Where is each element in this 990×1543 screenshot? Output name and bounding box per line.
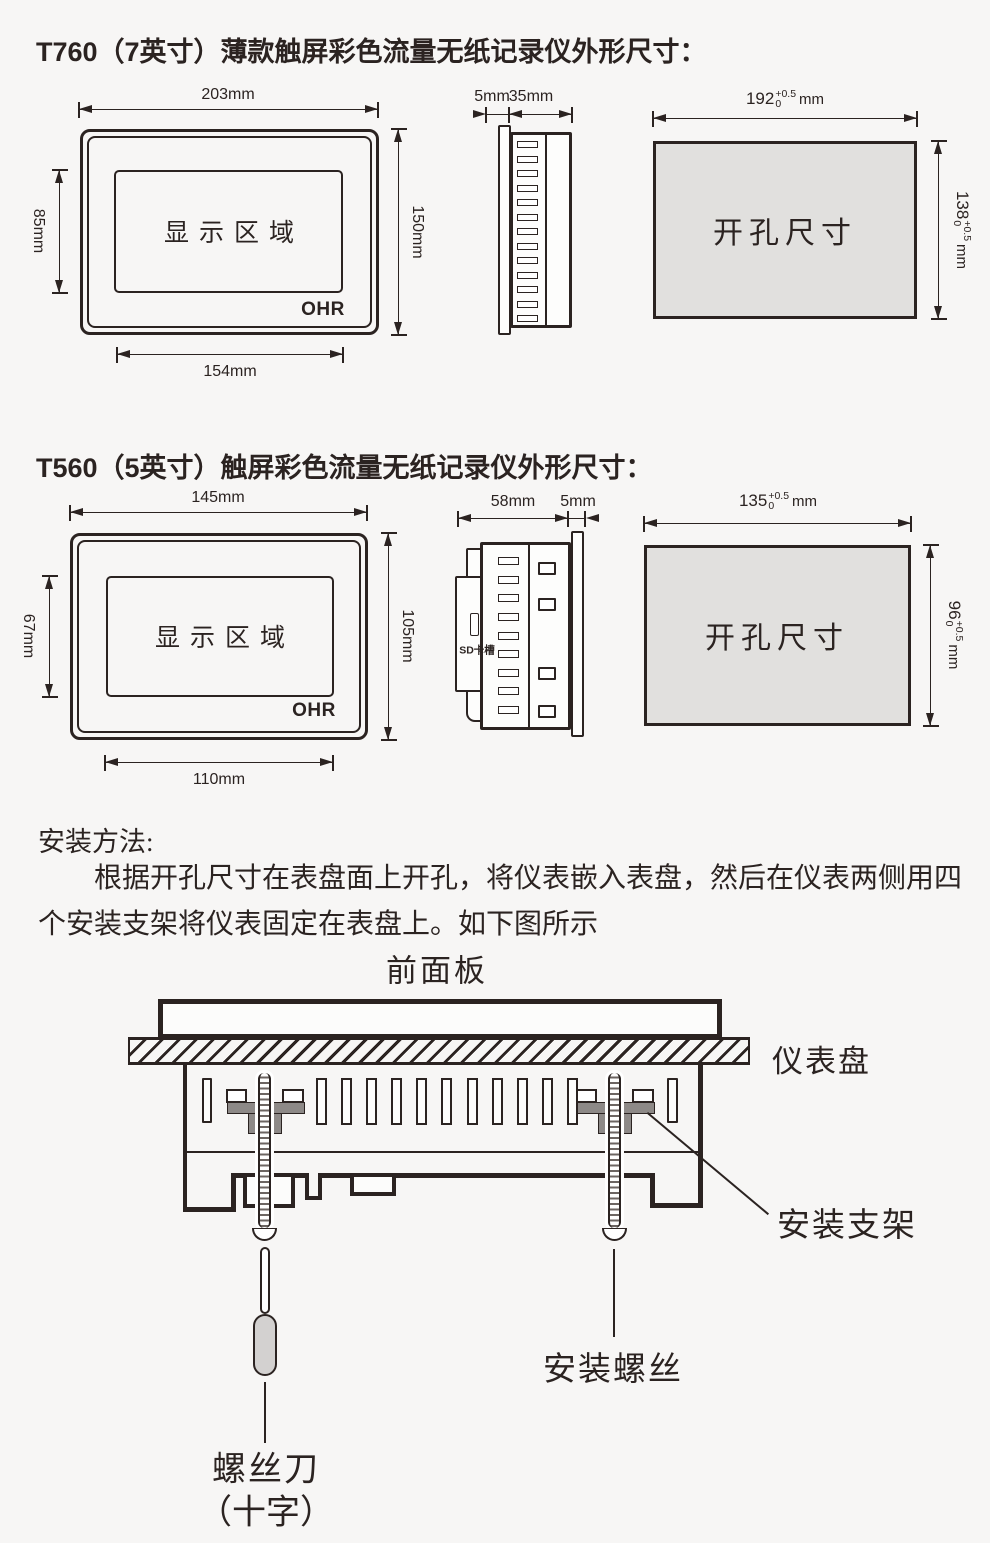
screwdriver-handle xyxy=(253,1314,277,1376)
vent-slot xyxy=(517,185,538,192)
vent-slot xyxy=(517,243,538,250)
bottom-profile-box xyxy=(350,1173,396,1196)
dim-arrow xyxy=(653,114,666,122)
t560-side-divider xyxy=(528,544,530,728)
vent-slot xyxy=(517,199,538,206)
t560-sd-label: SD卡槽 xyxy=(459,643,495,658)
vent-slot xyxy=(498,669,519,677)
vent-slot xyxy=(517,1078,528,1125)
vent-slot xyxy=(542,1078,553,1125)
t760-front-dim-bottom-label: 154mm xyxy=(203,363,256,381)
dim-arrow xyxy=(898,519,911,527)
front-panel-label: 前面板 xyxy=(386,946,488,991)
t560-side-dim-bezel-label: 5mm xyxy=(560,493,596,511)
t760-front-dim-bottom xyxy=(117,354,343,355)
vent-slot xyxy=(517,286,538,293)
dim-arrow xyxy=(555,514,568,522)
bracket-leader-line xyxy=(647,1112,769,1215)
t560-logo: OHR xyxy=(292,700,336,722)
vent-slot xyxy=(517,257,538,264)
t760-side-dim-bezel-label: 5mm xyxy=(474,88,510,106)
t560-front-dim-bottom xyxy=(105,762,333,763)
dim-arrow xyxy=(55,280,63,293)
screw-label: 安装螺丝 xyxy=(543,1342,683,1390)
instrument-panel-hatch xyxy=(128,1037,750,1065)
dim-arrow xyxy=(473,110,486,118)
vent-slot xyxy=(498,594,519,602)
dim-arrow xyxy=(394,129,402,142)
t560-front-dim-left-label: 67mm xyxy=(19,614,37,658)
bracket-notch xyxy=(632,1089,654,1103)
dim-arrow xyxy=(934,141,942,154)
vent-slot xyxy=(498,706,519,714)
t560-side-hole xyxy=(538,705,556,718)
t760-display-label: 显示区域 xyxy=(154,213,304,249)
t760-front-dim-left-label: 85mm xyxy=(29,209,47,253)
t760-side-dim-line xyxy=(486,114,572,115)
vent-slot xyxy=(416,1078,427,1125)
dim-arrow xyxy=(394,322,402,335)
t560-cutout-dim-right xyxy=(930,545,931,726)
install-paragraph-line2: 个安装支架将仪表固定在表盘上。如下图所示 xyxy=(38,902,598,942)
t760-front-dim-left xyxy=(59,170,60,293)
t760-title: T760（7英寸）薄款触屏彩色流量无纸记录仪外形尺寸： xyxy=(36,30,707,69)
install-heading: 安装方法: xyxy=(38,820,154,859)
t760-side-vent-slots xyxy=(517,141,538,322)
dim-arrow xyxy=(904,114,917,122)
t760-front-dim-top-label: 203mm xyxy=(201,86,254,104)
vent-slot xyxy=(202,1078,212,1123)
t560-front-dim-bottom-label: 110mm xyxy=(193,771,245,789)
t560-front-dim-left xyxy=(49,576,50,697)
bottom-profile-edge xyxy=(231,1173,236,1212)
page: T760（7英寸）薄款触屏彩色流量无纸记录仪外形尺寸： 203mm 显示区域 O… xyxy=(0,0,990,1543)
vent-slot xyxy=(498,650,519,658)
body-vent-slots xyxy=(316,1078,578,1125)
screwdriver-type-label: （十字） xyxy=(198,1485,334,1534)
t560-side-hole xyxy=(538,667,556,680)
bracket-label: 安装支架 xyxy=(777,1198,917,1246)
screwdriver-shaft xyxy=(260,1247,270,1314)
vent-slot xyxy=(391,1078,402,1125)
t760-front-dim-right-label: 150mm xyxy=(408,205,426,258)
vent-slot xyxy=(467,1078,478,1125)
vent-slot xyxy=(366,1078,377,1125)
vent-slot xyxy=(517,170,538,177)
dim-arrow xyxy=(559,110,572,118)
t560-front-dim-right xyxy=(388,533,389,740)
t560-cutout-label: 开孔尺寸 xyxy=(705,613,849,657)
t560-side-vent-slots xyxy=(498,557,519,714)
dim-arrow xyxy=(70,508,83,516)
body-left-edge xyxy=(183,1063,187,1212)
vent-slot xyxy=(316,1078,327,1125)
dim-arrow xyxy=(105,758,118,766)
t760-side-dim-depth-label: 35mm xyxy=(509,88,553,106)
dim-arrow xyxy=(320,758,333,766)
vent-slot xyxy=(441,1078,452,1125)
mounting-screw-tip xyxy=(252,1228,277,1241)
t560-cutout-dim-top-label: 135 +0.50 mm xyxy=(739,491,817,511)
dim-arrow xyxy=(644,519,657,527)
vent-slot xyxy=(341,1078,352,1125)
vent-slot xyxy=(498,632,519,640)
screw-leader-line xyxy=(613,1249,615,1337)
t560-side-body xyxy=(480,542,571,730)
t560-title: T560（5英寸）触屏彩色流量无纸记录仪外形尺寸： xyxy=(36,446,653,485)
dim-arrow xyxy=(79,105,92,113)
mounting-screw-tip xyxy=(602,1228,627,1241)
t560-side-dim-depth-label: 58mm xyxy=(491,493,535,511)
dim-arrow xyxy=(117,350,130,358)
dim-arrow xyxy=(45,576,53,589)
vent-slot xyxy=(517,141,538,148)
dim-arrow xyxy=(934,306,942,319)
t560-front-dim-top-label: 145mm xyxy=(191,489,244,507)
vent-slot xyxy=(517,156,538,163)
vent-slot xyxy=(498,557,519,565)
bottom-profile-edge xyxy=(650,1203,703,1208)
t560-front-dim-top xyxy=(70,512,367,513)
dim-arrow xyxy=(458,514,471,522)
install-paragraph-line1: 根据开孔尺寸在表盘面上开孔，将仪表嵌入表盘，然后在仪表两侧用四 xyxy=(38,856,962,896)
vent-slot xyxy=(517,301,538,308)
dim-arrow xyxy=(509,110,522,118)
t760-front-dim-right xyxy=(398,129,399,335)
dim-arrow xyxy=(365,105,378,113)
t560-side-hole xyxy=(538,598,556,611)
t560-cutout-dim-right-label: 96 +0.50 mm xyxy=(944,601,964,670)
t560-side-bezel xyxy=(571,531,584,737)
t760-front-dim-top xyxy=(79,109,378,110)
mounting-screw-rod xyxy=(608,1073,621,1228)
t760-logo: OHR xyxy=(301,299,345,321)
bracket-notch xyxy=(226,1089,247,1103)
t760-cutout-dim-right-label: 138 +0.50 mm xyxy=(952,191,972,269)
bracket-notch xyxy=(576,1089,597,1103)
t560-sd-slot xyxy=(470,613,479,636)
vent-slot xyxy=(498,687,519,695)
t760-side-divider xyxy=(545,135,547,325)
screwdriver-label: 螺丝刀 xyxy=(212,1442,320,1491)
t560-cutout-dim-top xyxy=(644,523,911,524)
t560-side-hole xyxy=(538,562,556,575)
dim-arrow xyxy=(384,533,392,546)
t560-display-label: 显示区域 xyxy=(145,618,295,654)
vent-slot xyxy=(517,214,538,221)
bottom-profile-edge xyxy=(320,1173,351,1178)
t760-cutout-dim-top xyxy=(653,118,917,119)
front-panel-shape xyxy=(158,999,722,1039)
dim-arrow xyxy=(926,545,934,558)
bottom-profile-edge xyxy=(183,1207,235,1212)
vent-slot xyxy=(492,1078,503,1125)
instrument-panel-label: 仪表盘 xyxy=(772,1036,871,1081)
dim-arrow xyxy=(586,514,599,522)
vent-slot xyxy=(517,272,538,279)
bracket-notch xyxy=(282,1089,304,1103)
screwdriver-leader-line xyxy=(264,1382,266,1443)
t760-cutout-dim-right xyxy=(938,141,939,319)
t760-cutout-label: 开孔尺寸 xyxy=(713,208,857,252)
t560-front-dim-right-label: 105mm xyxy=(398,609,416,662)
dim-arrow xyxy=(926,713,934,726)
body-right-edge xyxy=(698,1063,703,1208)
vent-slot xyxy=(517,228,538,235)
vent-slot xyxy=(517,315,538,322)
dim-arrow xyxy=(384,727,392,740)
vent-slot xyxy=(498,576,519,584)
mounting-screw-rod xyxy=(258,1073,271,1228)
t560-side-dim-line xyxy=(458,518,585,519)
vent-slot xyxy=(667,1078,678,1123)
dim-arrow xyxy=(55,170,63,183)
vent-slot xyxy=(498,613,519,621)
dim-arrow xyxy=(354,508,367,516)
dim-arrow xyxy=(45,684,53,697)
dim-arrow xyxy=(330,350,343,358)
t760-cutout-dim-top-label: 192 +0.50 mm xyxy=(746,89,824,109)
